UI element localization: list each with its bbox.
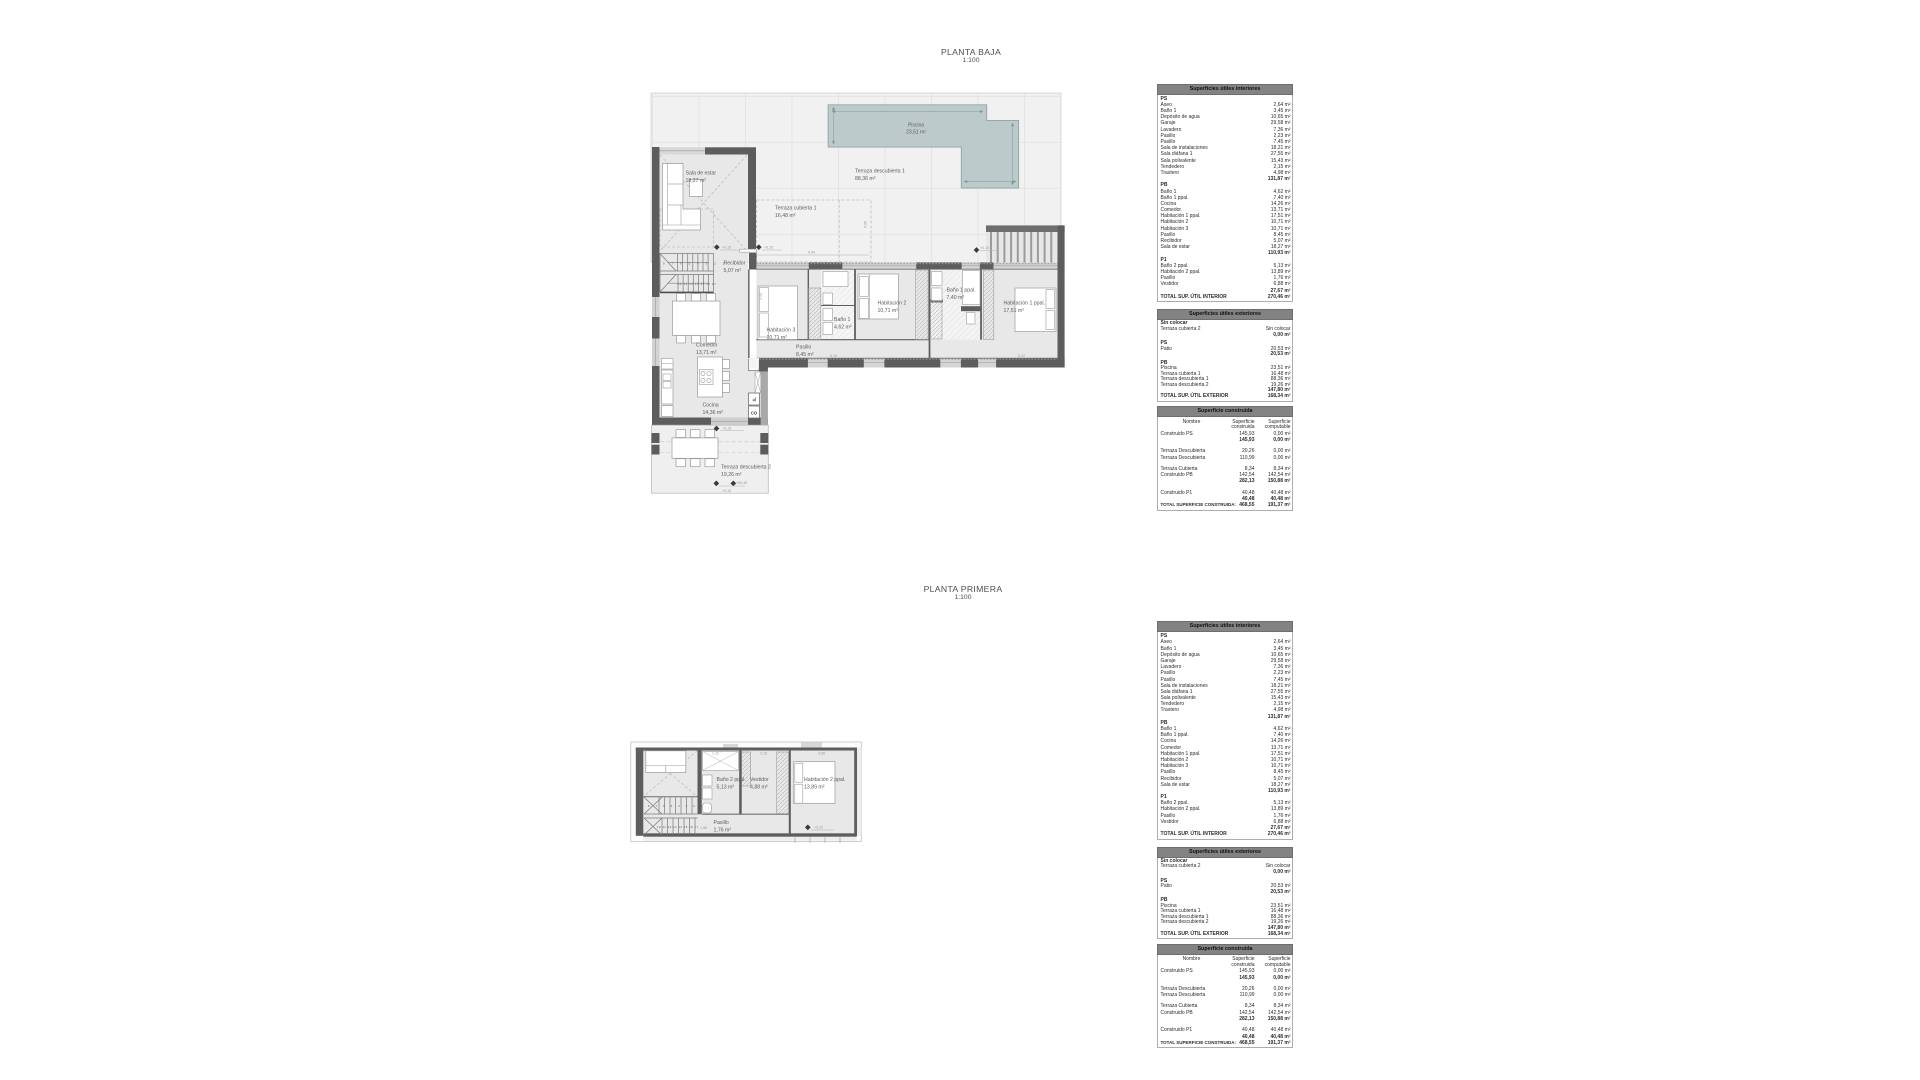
svg-text:2,15: 2,15 — [760, 752, 767, 756]
svg-text:+0,15: +0,15 — [722, 489, 731, 493]
svg-text:5,19: 5,19 — [830, 354, 837, 358]
svg-text:18,27 m²: 18,27 m² — [686, 178, 707, 184]
svg-text:13,89 m²: 13,89 m² — [804, 785, 825, 791]
svg-text:19,26 m²: 19,26 m² — [721, 472, 742, 478]
svg-text:+0,15: +0,15 — [980, 246, 989, 250]
svg-text:+3,20: +3,20 — [814, 826, 823, 830]
svg-text:3,56: 3,56 — [818, 752, 825, 756]
svg-text:9 7 6 5 4 3 2 1: 9 7 6 5 4 3 2 1 — [663, 261, 727, 265]
svg-text:Habitación 1 ppal.: Habitación 1 ppal. — [1004, 301, 1046, 307]
svg-text:+0,15: +0,15 — [722, 246, 731, 250]
svg-text:+0,15: +0,15 — [764, 246, 773, 250]
svg-text:Pasillo: Pasillo — [714, 820, 729, 826]
svg-text:Cocina: Cocina — [703, 403, 719, 409]
svg-text:Habitación 2 ppal.: Habitación 2 ppal. — [804, 777, 846, 783]
svg-text:1,76 m²: 1,76 m² — [714, 828, 732, 834]
svg-text:Recibidor: Recibidor — [724, 261, 746, 267]
svg-text:5,04: 5,04 — [808, 251, 815, 255]
svg-text:5,07 m²: 5,07 m² — [724, 268, 742, 274]
svg-text:17,51 m²: 17,51 m² — [1004, 308, 1025, 314]
svg-text:Sala de estar: Sala de estar — [686, 171, 717, 177]
svg-text:1,10: 1,10 — [712, 752, 719, 756]
svg-text:Habitación 3: Habitación 3 — [767, 328, 796, 334]
svg-text:Terraza descubierta 1: Terraza descubierta 1 — [855, 169, 905, 175]
svg-text:8,45 m²: 8,45 m² — [796, 352, 814, 358]
svg-text:Baño 1: Baño 1 — [834, 317, 851, 323]
svg-text:10 11 12 13 14 15 16 17: 10 11 12 13 14 15 16 17 — [657, 825, 699, 829]
svg-text:88,36 m²: 88,36 m² — [855, 176, 876, 182]
svg-text:5,00: 5,00 — [864, 221, 868, 228]
svg-text:Terraza cubierta 1: Terraza cubierta 1 — [775, 206, 817, 212]
svg-text:Pasillo: Pasillo — [796, 345, 811, 351]
svg-text:23,51 m²: 23,51 m² — [906, 130, 926, 136]
svg-text:11 12 13 14 15 16 17: 11 12 13 14 15 16 17 — [678, 282, 716, 286]
svg-text:Vestidor: Vestidor — [750, 777, 769, 783]
svg-text:13,71 m²: 13,71 m² — [696, 350, 717, 356]
svg-text:16,48 m²: 16,48 m² — [775, 213, 796, 219]
svg-text:+0,15: +0,15 — [722, 426, 731, 430]
svg-text:+84,45: +84,45 — [736, 481, 747, 485]
svg-text:Habitación 2: Habitación 2 — [878, 301, 907, 307]
svg-text:CO: CO — [751, 411, 758, 416]
svg-text:4,62 m²: 4,62 m² — [834, 325, 852, 331]
svg-text:8 7 6 5 4 3 2 1: 8 7 6 5 4 3 2 1 — [648, 804, 705, 808]
svg-text:10,71 m²: 10,71 m² — [878, 308, 899, 314]
svg-text:7,40 m²: 7,40 m² — [947, 295, 965, 301]
svg-text:5,12: 5,12 — [1018, 354, 1025, 358]
svg-text:4,88 m²: 4,88 m² — [750, 785, 768, 791]
svg-text:14,36 m²: 14,36 m² — [703, 410, 724, 416]
svg-text:Comedor: Comedor — [696, 343, 718, 349]
svg-text:5,13 m²: 5,13 m² — [717, 785, 735, 791]
svg-text:1,96: 1,96 — [700, 826, 707, 830]
svg-text:Baño 1 ppal.: Baño 1 ppal. — [947, 288, 976, 294]
svg-text:10,71 m²: 10,71 m² — [767, 335, 788, 341]
svg-text:Piscina: Piscina — [908, 123, 924, 129]
svg-text:Baño 2 ppal.: Baño 2 ppal. — [717, 777, 746, 783]
svg-text:Terraza descubierta 2: Terraza descubierta 2 — [721, 465, 771, 471]
svg-text:3,45: 3,45 — [759, 293, 763, 300]
